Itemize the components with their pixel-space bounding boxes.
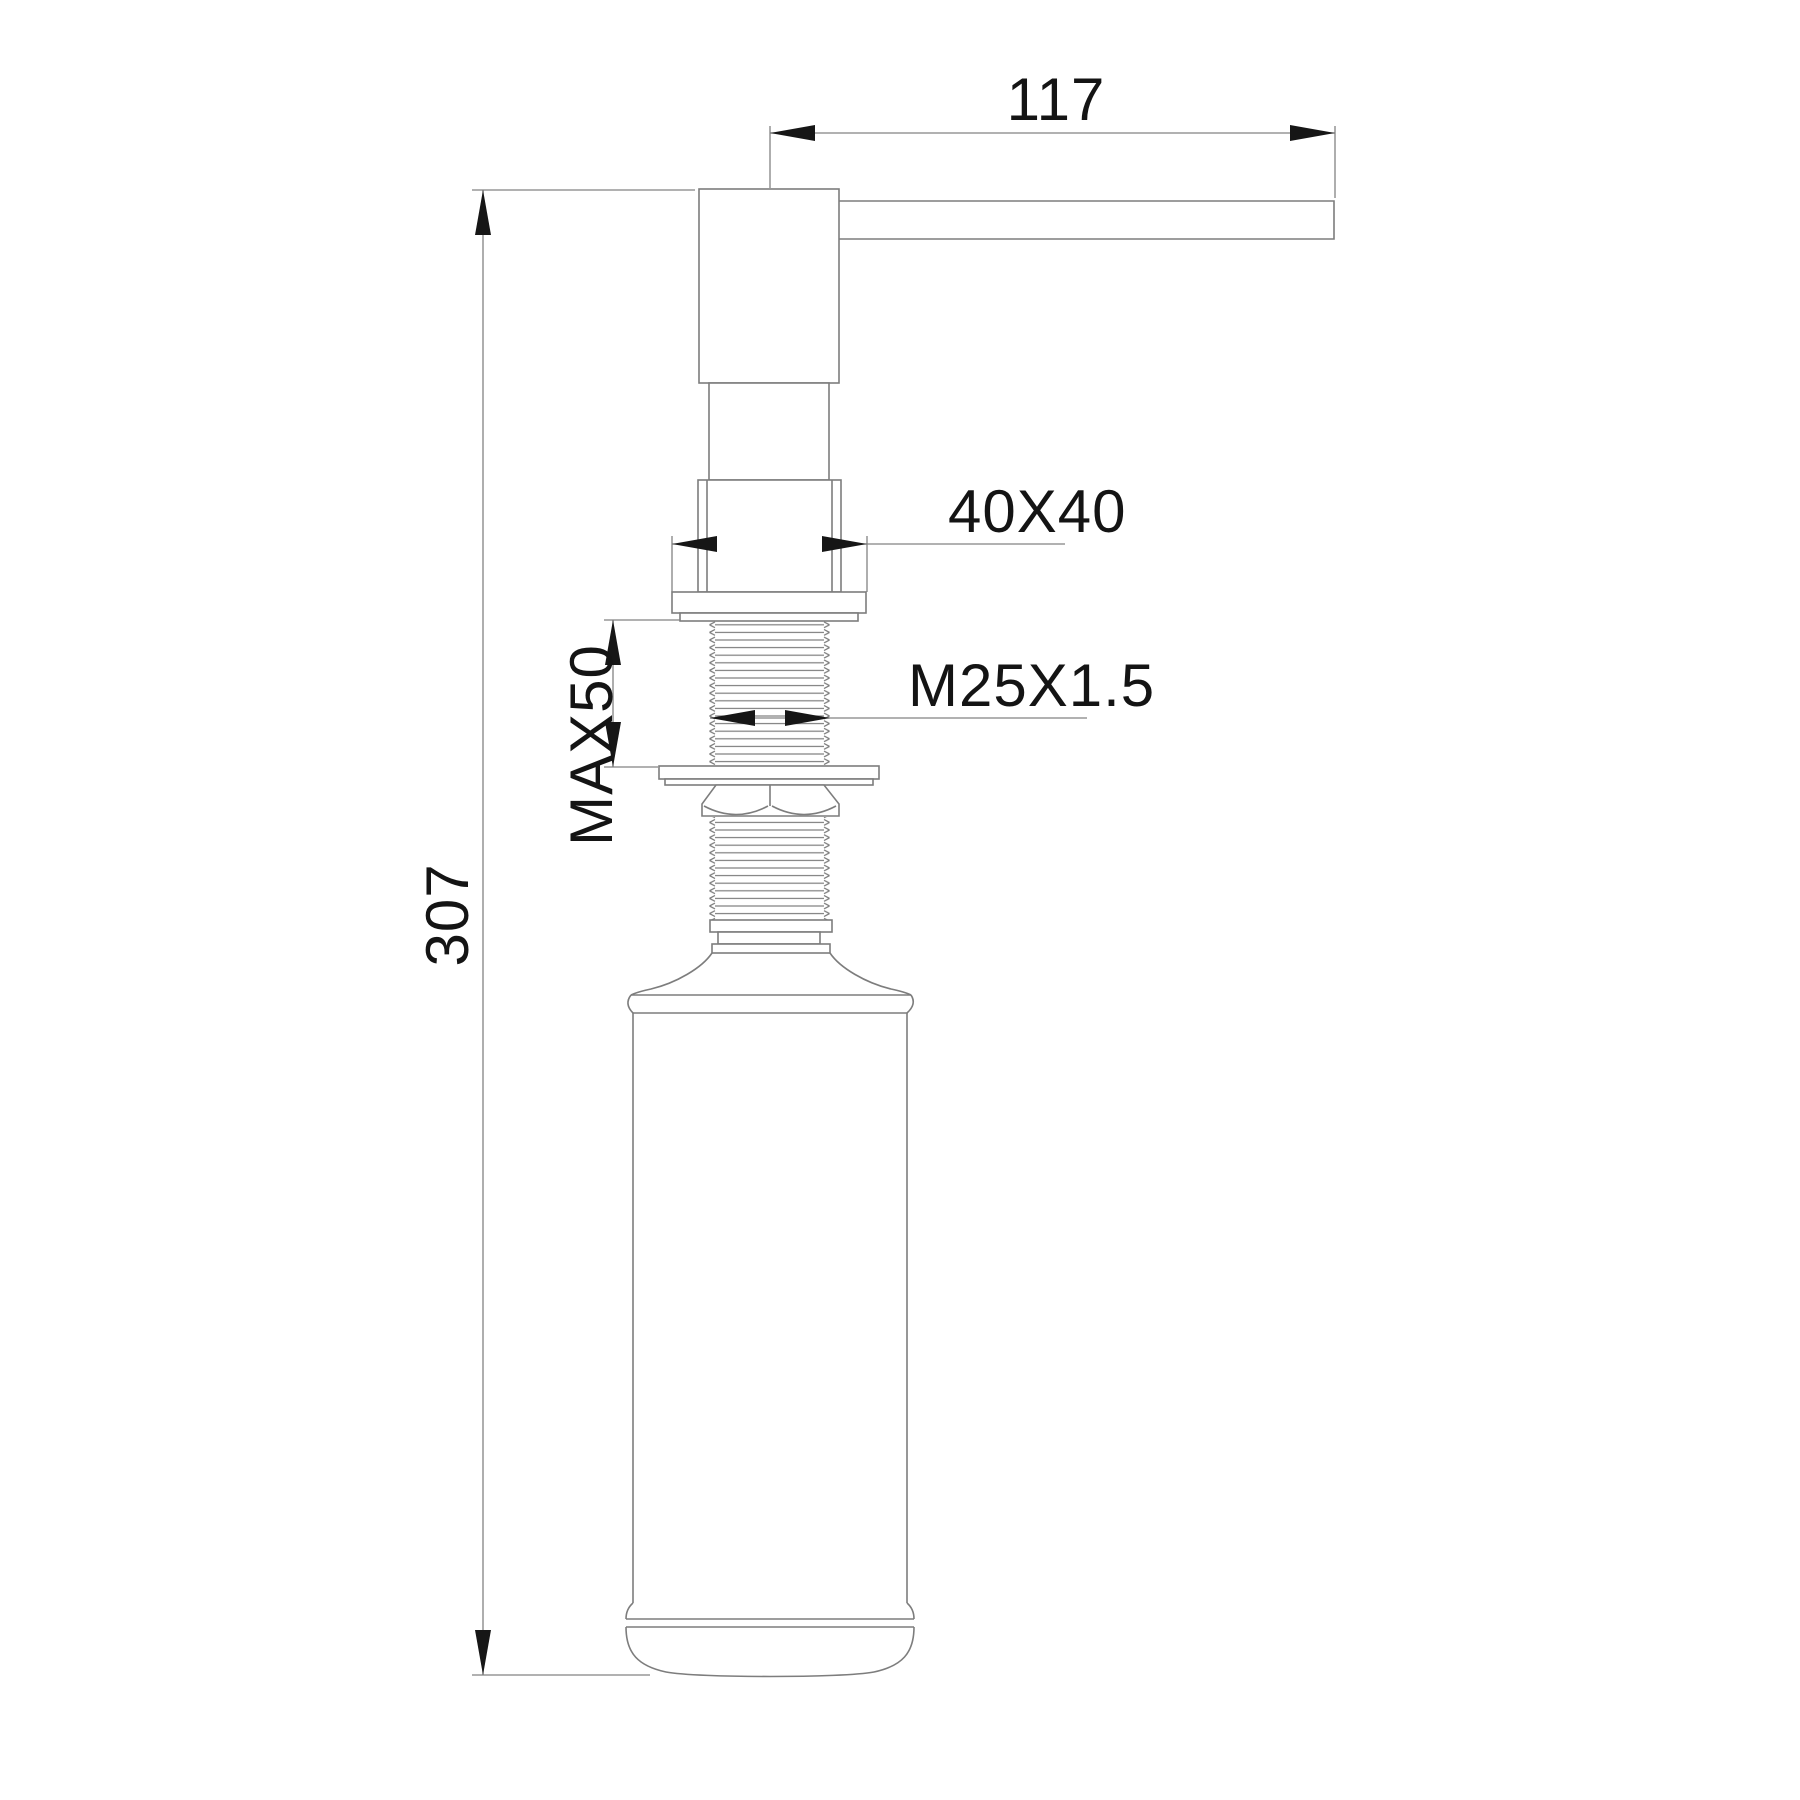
mount-flange-lip (680, 613, 858, 621)
bottle-cap-ring (712, 944, 830, 953)
dim-max-thickness-label: MAX50 (558, 644, 625, 846)
mount-flange (672, 592, 866, 613)
drawing-page: 117 307 40X40 MAX50 M25X1.5 (0, 0, 1800, 1800)
mounting-washer (659, 766, 879, 779)
technical-drawing-canvas: 117 307 40X40 MAX50 M25X1.5 (0, 0, 1800, 1800)
mounting-washer-lip (665, 779, 873, 785)
dim-thread-spec-label: M25X1.5 (908, 652, 1155, 719)
dim-overall-height-label: 307 (414, 863, 481, 966)
thread-stop-ring (710, 920, 832, 932)
pump-head (699, 189, 839, 383)
pump-shaft (709, 383, 829, 480)
dim-spout-length-label: 117 (1007, 66, 1106, 133)
threaded-stud-upper (709, 621, 830, 766)
mount-collar (698, 480, 841, 592)
threaded-stud-lower (709, 817, 830, 920)
dim-head-section-label: 40X40 (948, 478, 1127, 545)
bottle-neck (718, 932, 820, 944)
drawing-background (0, 0, 1800, 1800)
